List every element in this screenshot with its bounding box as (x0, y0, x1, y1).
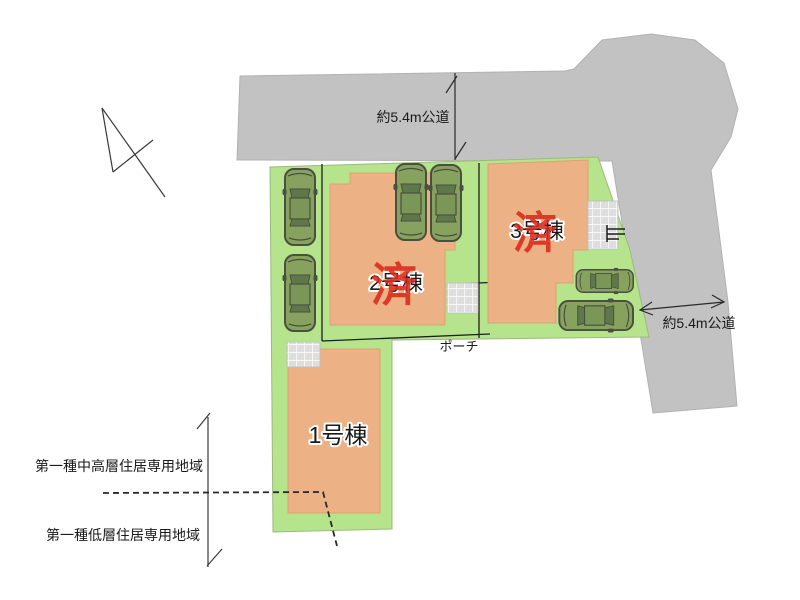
zoning-bracket-line (197, 413, 222, 567)
zoning-label-upper: 第一種中高層住居専用地域 (35, 458, 203, 474)
road-width-label-top: 約5.4m公道 (376, 109, 449, 125)
site-plan-page: 1号棟 2号棟 3号棟 済 済 ポーチ 約5.4m公道 約5.4m公道 第一種中… (0, 0, 800, 600)
porch-tiles-building-1 (287, 342, 320, 367)
zoning-label-lower: 第一種低層住居専用地域 (46, 527, 200, 543)
sold-stamp-building-2: 済 (371, 259, 418, 311)
north-arrow-icon (102, 108, 165, 197)
car-icon (283, 169, 318, 245)
site-plan-canvas: 1号棟 2号棟 3号棟 済 済 ポーチ 約5.4m公道 約5.4m公道 第一種中… (0, 0, 800, 600)
car-icon (394, 164, 429, 240)
car-icon (559, 299, 633, 333)
building-1-label: 1号棟 (309, 422, 368, 448)
car-icon (576, 268, 633, 294)
sold-stamp-building-3: 済 (513, 209, 558, 258)
porch-tiles-building-2 (447, 283, 478, 313)
road-width-label-right: 約5.4m公道 (662, 315, 735, 331)
car-icon (283, 255, 318, 331)
car-icon (429, 165, 464, 241)
porch-label: ポーチ (439, 339, 478, 354)
porch-tiles-building-3 (588, 201, 618, 249)
